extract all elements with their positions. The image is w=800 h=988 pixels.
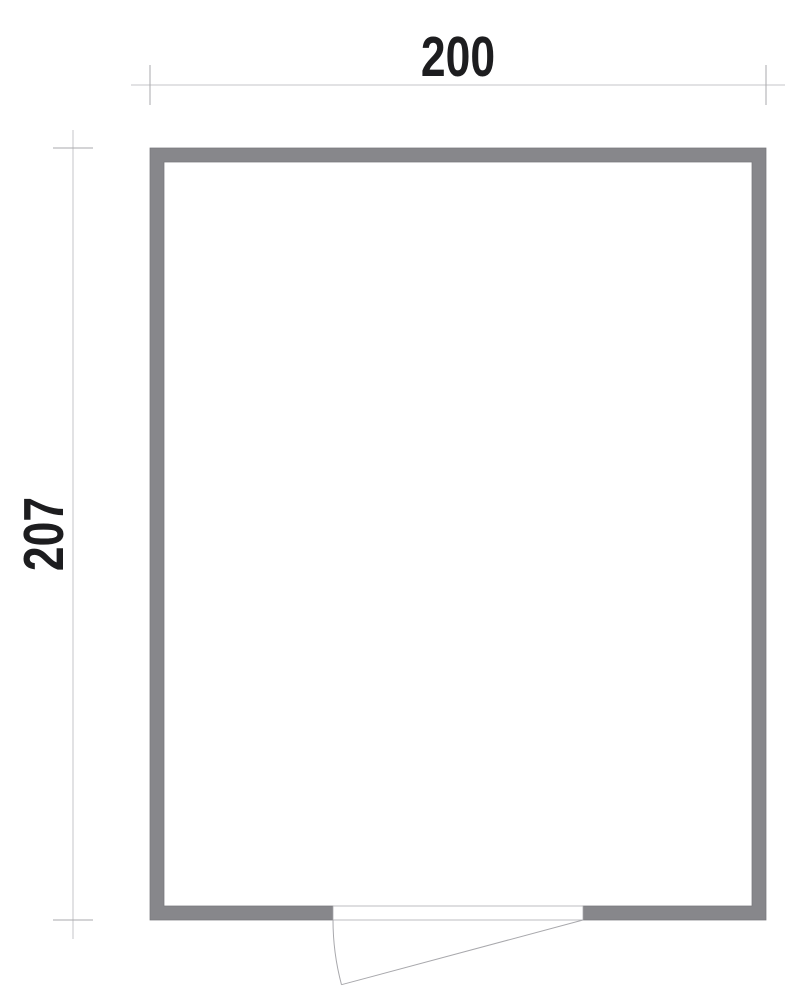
width-dimension: 200 bbox=[131, 25, 785, 105]
door-swing-arc bbox=[333, 920, 342, 985]
floor-plan-canvas: 200 207 bbox=[0, 0, 800, 988]
door-opening bbox=[333, 906, 583, 920]
width-dimension-label: 200 bbox=[421, 25, 495, 89]
height-dimension-label: 207 bbox=[12, 497, 76, 571]
walls bbox=[150, 148, 766, 920]
door-leaf bbox=[342, 920, 584, 985]
floor-plan: 200 207 bbox=[0, 0, 800, 988]
height-dimension: 207 bbox=[12, 130, 93, 939]
